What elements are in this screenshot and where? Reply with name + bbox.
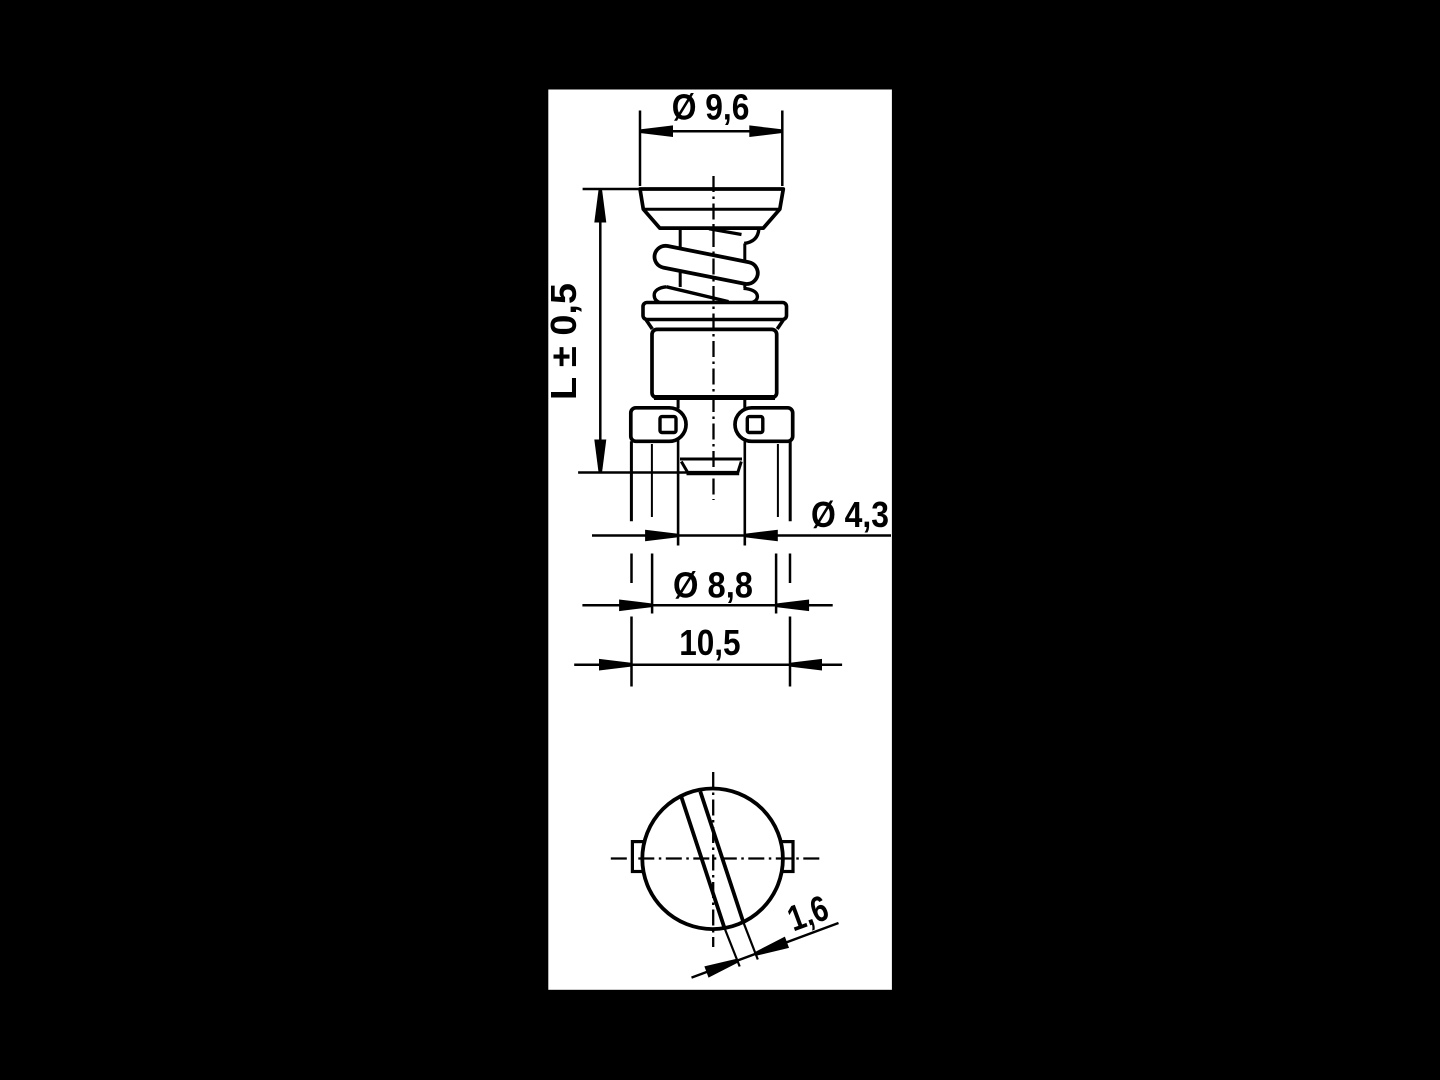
svg-text:Ø 8,8: Ø 8,8 bbox=[673, 565, 753, 606]
svg-text:L ± 0,5: L ± 0,5 bbox=[543, 283, 584, 400]
svg-text:Ø 4,3: Ø 4,3 bbox=[811, 494, 889, 535]
svg-text:Ø 9,6: Ø 9,6 bbox=[672, 87, 750, 128]
svg-text:10,5: 10,5 bbox=[679, 622, 740, 663]
